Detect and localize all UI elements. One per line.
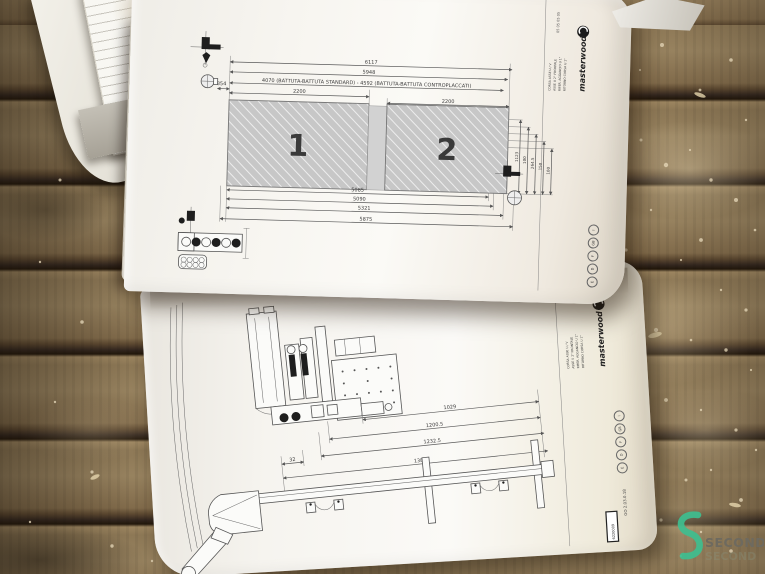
panel-2-label: 2 — [436, 133, 458, 169]
edge-mark: F — [591, 255, 595, 257]
watermark-graphic: SECOND SECOND — [668, 506, 764, 572]
dim-label: 100 — [522, 156, 527, 164]
dim-label: 6117 — [365, 60, 378, 66]
panel-1-label: 1 — [287, 128, 309, 164]
edge-mark: F — [619, 441, 623, 443]
edge-language-marks: I GB F D E — [587, 225, 599, 287]
dim-label: 1232.5 — [423, 438, 441, 446]
doc-code: GO 2.03.0.18 — [622, 489, 629, 516]
top-page-drawing: 1 2 6117 5948 4070 (BATTUTA-BATTUTA STAN… — [124, 0, 633, 305]
dim-label: 100 — [546, 166, 551, 174]
edge-mark: E — [590, 281, 594, 283]
side-view-drawing: 1029 1200.5 1232.5 1380 32 — [155, 279, 561, 574]
watermark-brand: SECOND — [705, 535, 764, 550]
dim-label: 5085 — [351, 187, 364, 193]
watermark: SECOND SECOND — [668, 506, 764, 572]
edge-mark: I — [617, 415, 621, 416]
origin-circle-icon — [201, 75, 218, 88]
title-line: CORSA ASSE U / V — [547, 62, 552, 90]
dim-label: 2200 — [293, 89, 306, 95]
edge-mark: GB — [618, 426, 622, 432]
dim-label: 5948 — [362, 70, 375, 76]
dim-label: 354 — [217, 81, 227, 87]
dim-label: 5321 — [358, 205, 371, 211]
edge-mark: D — [591, 267, 595, 270]
top-page: 1 2 6117 5948 4070 (BATTUTA-BATTUTA STAN… — [124, 0, 633, 305]
edge-language-marks: I GB F D E — [614, 411, 628, 473]
dimension-group-right: 1123 100 264.5 150 100 — [507, 120, 555, 195]
dim-label: 1200.5 — [426, 421, 444, 429]
dim-label-small: 32 — [289, 457, 296, 464]
clamp-icon — [471, 480, 509, 494]
boring-head-icon — [177, 206, 250, 270]
rail-assembly-icon — [172, 438, 562, 574]
spindle-tool-icon — [190, 31, 224, 68]
watermark-s-icon — [681, 515, 700, 557]
brand-logo-text: masterwood — [577, 35, 588, 91]
clamp-icon — [306, 499, 344, 513]
watermark-shadow-text: SECOND — [705, 550, 756, 563]
brand-logo-text: masterwood — [595, 311, 607, 368]
part-code-box: 6220009 — [606, 511, 619, 542]
title-line: RITORNO CORSA U 1° — [562, 58, 567, 91]
title-line: RITORNO CORSA U 1° — [579, 335, 585, 369]
title-block: masterwood CORSA ASSE U / V ASSE U 2° FR… — [538, 0, 590, 292]
dim-label: 2200 — [442, 99, 455, 105]
page-edge-lines — [166, 302, 204, 552]
dim-label: 5875 — [359, 217, 372, 223]
edge-mark: GB — [591, 240, 595, 246]
edge-mark: D — [620, 453, 624, 456]
dim-label: 264.5 — [530, 157, 535, 169]
edge-mark: I — [592, 229, 596, 230]
title-block: masterwood CORSA ASSE U / V ASSE U 2° FR… — [390, 270, 619, 556]
edge-mark: E — [620, 467, 624, 469]
dim-label: 150 — [538, 162, 543, 170]
workbench-photo: 1029 1200.5 1232.5 1380 32 — [0, 0, 765, 574]
dim-label: 1123 — [514, 151, 519, 162]
dim-label: 5090 — [353, 196, 366, 202]
machine-head-icon — [246, 294, 403, 428]
panel-gap — [367, 106, 387, 190]
worktable-panels: 1 2 — [227, 100, 509, 194]
corner-codes: 05 05 05 05 — [556, 12, 561, 33]
